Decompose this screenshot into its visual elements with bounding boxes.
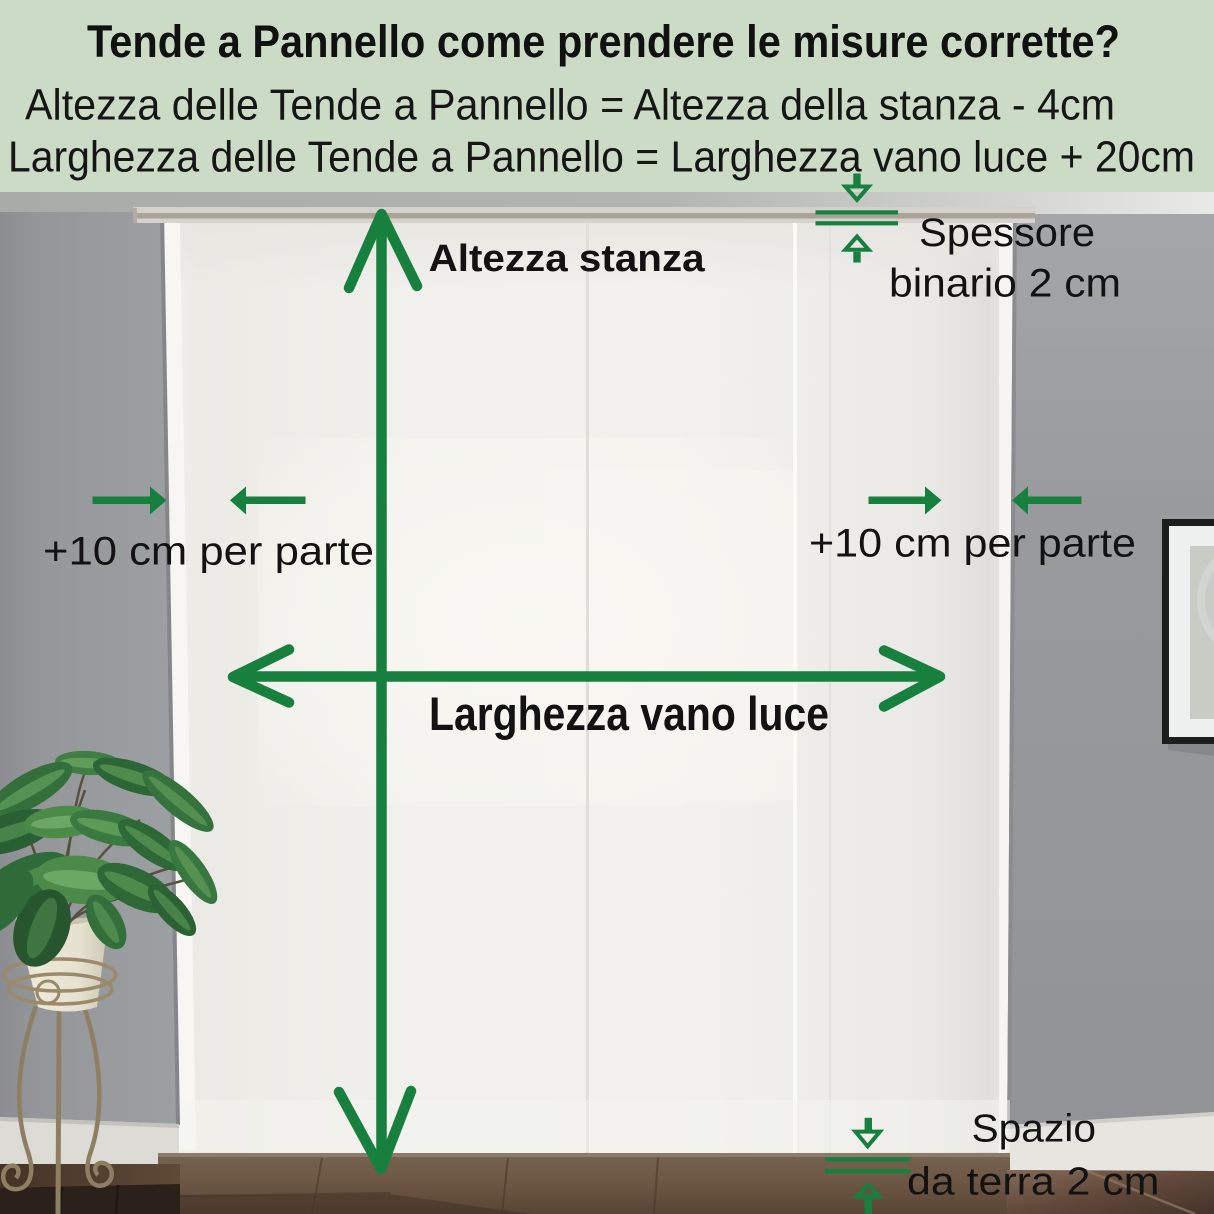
- svg-text:binario 2 cm: binario 2 cm: [889, 262, 1121, 306]
- svg-text:Larghezza vano luce: Larghezza vano luce: [429, 687, 829, 740]
- svg-text:+10 cm per parte: +10 cm per parte: [43, 530, 374, 574]
- svg-text:Spazio: Spazio: [972, 1108, 1097, 1151]
- svg-text:Altezza stanza: Altezza stanza: [429, 238, 706, 280]
- svg-text:+10 cm per parte: +10 cm per parte: [809, 522, 1136, 566]
- svg-text:Spessore: Spessore: [919, 211, 1095, 255]
- svg-text:da terra 2 cm: da terra 2 cm: [907, 1161, 1160, 1204]
